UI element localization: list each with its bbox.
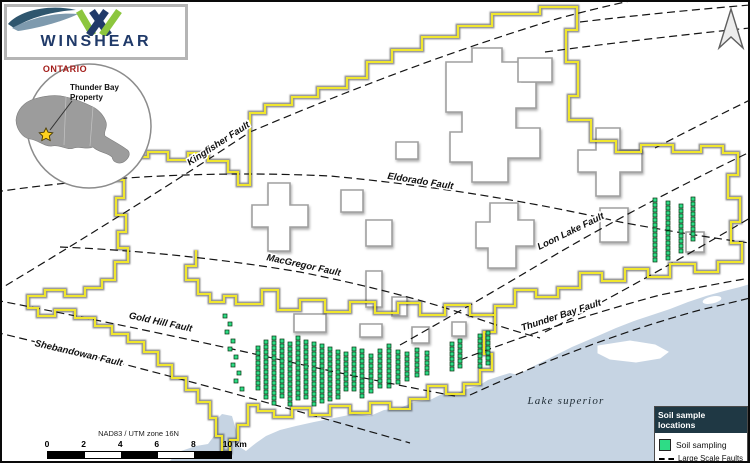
soil-sample-point bbox=[312, 347, 316, 351]
soil-sample-point bbox=[256, 386, 260, 390]
soil-sample-point bbox=[288, 372, 292, 376]
soil-sample-point bbox=[396, 380, 400, 384]
soil-sample-point bbox=[280, 369, 284, 373]
soil-sample-point bbox=[320, 399, 324, 403]
scalebar-tick: 2 bbox=[81, 439, 86, 449]
soil-sample-point bbox=[691, 202, 695, 206]
soil-sample-point bbox=[280, 374, 284, 378]
soil-sample-point bbox=[478, 344, 482, 348]
soil-sample-point bbox=[272, 351, 276, 355]
soil-sample-point bbox=[264, 345, 268, 349]
soil-sample-point bbox=[352, 372, 356, 376]
logo-text: WINSHEAR bbox=[7, 33, 185, 51]
soil-sample-point bbox=[344, 362, 348, 366]
soil-sample-point bbox=[666, 216, 670, 220]
soil-sample-point bbox=[296, 351, 300, 355]
inset-title: ONTARIO bbox=[43, 64, 87, 74]
soil-sample-point bbox=[228, 347, 232, 351]
soil-sample-point bbox=[458, 364, 462, 368]
soil-sample-point bbox=[360, 374, 364, 378]
soil-sample-point bbox=[264, 360, 268, 364]
soil-sample-point bbox=[272, 341, 276, 345]
soil-sample-point bbox=[288, 342, 292, 346]
soil-sample-point bbox=[653, 243, 657, 247]
soil-sample-point bbox=[486, 361, 490, 365]
legend: Soil sample locations Soil sampling Larg… bbox=[654, 406, 748, 463]
soil-sample-point bbox=[387, 359, 391, 363]
soil-sample-point bbox=[296, 391, 300, 395]
soil-sample-point bbox=[653, 253, 657, 257]
soil-sample-point bbox=[296, 341, 300, 345]
soil-sample-point bbox=[378, 379, 382, 383]
soil-sample-point bbox=[679, 234, 683, 238]
soil-sample-point bbox=[288, 352, 292, 356]
soil-sample-point bbox=[387, 364, 391, 368]
soil-sample-point bbox=[425, 366, 429, 370]
soil-sample-point bbox=[360, 369, 364, 373]
soil-sample-point bbox=[336, 390, 340, 394]
soil-sample-point bbox=[256, 361, 260, 365]
soil-sample-point bbox=[272, 381, 276, 385]
soil-sample-point bbox=[344, 357, 348, 361]
soil-sample-point bbox=[679, 204, 683, 208]
soil-sample-point bbox=[264, 370, 268, 374]
soil-sample-point bbox=[425, 356, 429, 360]
soil-sample-point bbox=[450, 357, 454, 361]
soil-sample-point bbox=[312, 382, 316, 386]
soil-sample-point bbox=[486, 346, 490, 350]
soil-sample-point bbox=[304, 380, 308, 384]
soil-sample-point bbox=[272, 386, 276, 390]
soil-sample-point bbox=[296, 356, 300, 360]
scalebar-tick: 4 bbox=[118, 439, 123, 449]
soil-sample-point bbox=[396, 360, 400, 364]
soil-sample-point bbox=[264, 380, 268, 384]
dashed-line-swatch-icon bbox=[659, 458, 674, 460]
soil-sample-point bbox=[478, 364, 482, 368]
soil-sample-point bbox=[352, 347, 356, 351]
soil-sample-point bbox=[360, 349, 364, 353]
soil-sample-point bbox=[296, 381, 300, 385]
claim-outline bbox=[360, 324, 382, 337]
soil-sample-point bbox=[320, 344, 324, 348]
soil-sample-point bbox=[231, 339, 235, 343]
soil-sample-point bbox=[369, 389, 373, 393]
scalebar: NAD83 / UTM zone 16N 10 km 02468 bbox=[47, 429, 230, 461]
soil-sample-point bbox=[352, 362, 356, 366]
soil-sample-point bbox=[280, 359, 284, 363]
soil-sample-point bbox=[360, 359, 364, 363]
soil-sample-point bbox=[666, 211, 670, 215]
soil-sample-point bbox=[679, 209, 683, 213]
soil-sample-point bbox=[288, 387, 292, 391]
soil-sample-point bbox=[666, 236, 670, 240]
soil-sample-point bbox=[679, 224, 683, 228]
soil-sample-point bbox=[256, 346, 260, 350]
soil-sample-point bbox=[336, 395, 340, 399]
soil-sample-point bbox=[666, 246, 670, 250]
soil-sample-point bbox=[296, 396, 300, 400]
soil-sample-point bbox=[272, 396, 276, 400]
soil-sample-point bbox=[264, 375, 268, 379]
soil-sample-point bbox=[264, 340, 268, 344]
soil-sample-point bbox=[304, 365, 308, 369]
soil-sample-point bbox=[352, 367, 356, 371]
soil-sample-point bbox=[304, 375, 308, 379]
soil-sample-point bbox=[280, 364, 284, 368]
legend-item-soil-sampling: Soil sampling bbox=[659, 439, 743, 451]
soil-sample-point bbox=[296, 386, 300, 390]
soil-sample-point bbox=[328, 362, 332, 366]
soil-sample-point bbox=[312, 402, 316, 406]
soil-sample-point bbox=[336, 365, 340, 369]
scalebar-tick: 0 bbox=[45, 439, 50, 449]
soil-sample-point bbox=[344, 352, 348, 356]
soil-sample-point bbox=[369, 384, 373, 388]
soil-sample-point bbox=[256, 366, 260, 370]
soil-sample-point bbox=[264, 395, 268, 399]
soil-sample-point bbox=[387, 369, 391, 373]
soil-sample-point bbox=[320, 384, 324, 388]
soil-sample-point bbox=[458, 349, 462, 353]
soil-sample-point bbox=[396, 375, 400, 379]
soil-sample-point bbox=[415, 348, 419, 352]
soil-sample-point bbox=[296, 366, 300, 370]
soil-sample-point bbox=[405, 377, 409, 381]
soil-sample-point bbox=[304, 360, 308, 364]
scalebar-bar bbox=[47, 451, 232, 459]
soil-sample-point bbox=[691, 197, 695, 201]
soil-sample-point bbox=[312, 387, 316, 391]
soil-sample-point bbox=[387, 384, 391, 388]
soil-sample-point bbox=[304, 390, 308, 394]
soil-sample-point bbox=[360, 354, 364, 358]
soil-sample-point bbox=[328, 397, 332, 401]
soil-sample-point bbox=[691, 237, 695, 241]
soil-sample-point bbox=[352, 387, 356, 391]
soil-sample-point bbox=[237, 371, 241, 375]
soil-sample-point bbox=[387, 374, 391, 378]
soil-sample-point bbox=[272, 366, 276, 370]
soil-sample-point bbox=[231, 363, 235, 367]
soil-sample-point bbox=[328, 382, 332, 386]
soil-sample-point bbox=[256, 371, 260, 375]
legend-title: Soil sample locations bbox=[655, 407, 747, 433]
winshear-swoosh-icon bbox=[2, 2, 82, 32]
soil-sample-point bbox=[272, 361, 276, 365]
soil-sample-point bbox=[666, 226, 670, 230]
soil-sample-point bbox=[272, 371, 276, 375]
soil-sample-point bbox=[344, 372, 348, 376]
soil-sample-point bbox=[369, 354, 373, 358]
soil-sample-point bbox=[336, 375, 340, 379]
soil-sample-point bbox=[296, 361, 300, 365]
legend-item-large-scale-faults: Large Scale Faults bbox=[659, 454, 743, 463]
soil-sample-point bbox=[352, 377, 356, 381]
soil-sample-point bbox=[256, 351, 260, 355]
soil-sample-point bbox=[360, 394, 364, 398]
soil-sample-point bbox=[328, 392, 332, 396]
claim-outline bbox=[518, 58, 552, 82]
soil-sample-point bbox=[288, 347, 292, 351]
soil-sample-point bbox=[264, 350, 268, 354]
soil-sample-point bbox=[225, 330, 229, 334]
soil-sample-point bbox=[415, 358, 419, 362]
soil-sample-point bbox=[280, 344, 284, 348]
soil-sample-point bbox=[288, 357, 292, 361]
soil-sample-point bbox=[666, 251, 670, 255]
soil-sample-point bbox=[328, 367, 332, 371]
soil-sample-point bbox=[256, 381, 260, 385]
soil-sample-point bbox=[296, 336, 300, 340]
soil-sample-point bbox=[369, 369, 373, 373]
claim-outline bbox=[452, 322, 466, 336]
soil-sample-point bbox=[679, 244, 683, 248]
soil-sample-point bbox=[425, 351, 429, 355]
soil-sample-point bbox=[425, 371, 429, 375]
soil-sample-point bbox=[415, 373, 419, 377]
soil-sample-point bbox=[691, 232, 695, 236]
soil-sample-point bbox=[320, 394, 324, 398]
soil-sample-point bbox=[360, 389, 364, 393]
soil-sample-point bbox=[405, 362, 409, 366]
soil-sample-point bbox=[320, 379, 324, 383]
soil-sample-point bbox=[312, 367, 316, 371]
soil-sample-point bbox=[272, 391, 276, 395]
soil-sample-point bbox=[228, 322, 232, 326]
soil-sample-point bbox=[458, 359, 462, 363]
soil-sample-point bbox=[264, 390, 268, 394]
soil-sample-point bbox=[478, 359, 482, 363]
soil-sample-point bbox=[387, 354, 391, 358]
soil-sample-point bbox=[352, 357, 356, 361]
soil-sample-point bbox=[336, 350, 340, 354]
soil-sample-point bbox=[691, 222, 695, 226]
soil-sample-point bbox=[486, 351, 490, 355]
soil-sample-point bbox=[296, 346, 300, 350]
soil-sample-point bbox=[304, 385, 308, 389]
soil-sample-point bbox=[312, 357, 316, 361]
soil-sample-point bbox=[691, 217, 695, 221]
soil-sample-point bbox=[396, 355, 400, 359]
soil-sample-point bbox=[344, 387, 348, 391]
soil-sample-point bbox=[405, 372, 409, 376]
soil-sample-point bbox=[653, 213, 657, 217]
soil-sample-point bbox=[679, 239, 683, 243]
soil-sample-point bbox=[328, 347, 332, 351]
soil-sample-point bbox=[458, 344, 462, 348]
soil-sample-point bbox=[666, 221, 670, 225]
soil-sample-point bbox=[296, 376, 300, 380]
soil-sample-point bbox=[336, 360, 340, 364]
soil-sample-point bbox=[679, 249, 683, 253]
soil-sample-point bbox=[653, 218, 657, 222]
soil-sample-point bbox=[234, 355, 238, 359]
inset-property-label: Property bbox=[70, 93, 103, 102]
map-canvas: Kingfisher FaultEldorado FaultLoon Lake … bbox=[0, 0, 750, 463]
soil-sample-point bbox=[288, 362, 292, 366]
soil-sample-point bbox=[320, 364, 324, 368]
soil-sample-point bbox=[288, 397, 292, 401]
soil-sample-point bbox=[320, 354, 324, 358]
soil-sample-point bbox=[450, 362, 454, 366]
claim-outline bbox=[600, 208, 628, 242]
soil-sample-point bbox=[280, 354, 284, 358]
soil-sample-point bbox=[264, 385, 268, 389]
scalebar-tick: 6 bbox=[154, 439, 159, 449]
claim-outline bbox=[396, 142, 418, 159]
soil-sample-point bbox=[320, 369, 324, 373]
soil-sample-point bbox=[272, 401, 276, 405]
soil-sample-point bbox=[320, 374, 324, 378]
soil-sample-point bbox=[450, 347, 454, 351]
soil-sample-point bbox=[666, 206, 670, 210]
soil-sample-point bbox=[653, 203, 657, 207]
soil-sample-point bbox=[312, 342, 316, 346]
soil-sample-point bbox=[280, 349, 284, 353]
soil-sample-point bbox=[405, 357, 409, 361]
soil-sample-point bbox=[405, 367, 409, 371]
soil-sample-point bbox=[478, 349, 482, 353]
soil-sample-point bbox=[272, 336, 276, 340]
soil-sample-point bbox=[691, 207, 695, 211]
claim-outline bbox=[366, 220, 392, 246]
soil-sample-point bbox=[264, 355, 268, 359]
soil-sample-point bbox=[352, 382, 356, 386]
soil-sample-point bbox=[256, 356, 260, 360]
soil-sample-point bbox=[369, 374, 373, 378]
soil-sample-point bbox=[296, 371, 300, 375]
soil-sample-point bbox=[486, 356, 490, 360]
soil-sample-point bbox=[288, 367, 292, 371]
soil-sample-point bbox=[450, 367, 454, 371]
soil-sample-point bbox=[336, 370, 340, 374]
scalebar-ticks: 10 km 02468 bbox=[47, 439, 230, 449]
inset-property-label: Thunder Bay bbox=[70, 83, 119, 92]
soil-sample-point bbox=[405, 352, 409, 356]
soil-sample-point bbox=[288, 377, 292, 381]
soil-sample-point bbox=[223, 314, 227, 318]
soil-sample-point bbox=[378, 369, 382, 373]
soil-sample-point bbox=[304, 345, 308, 349]
claim-outline bbox=[294, 314, 326, 332]
soil-sample-point bbox=[486, 341, 490, 345]
soil-sample-point bbox=[312, 397, 316, 401]
soil-sample-point bbox=[312, 392, 316, 396]
soil-sample-point bbox=[344, 382, 348, 386]
legend-body: Soil sampling Large Scale Faults bbox=[655, 433, 747, 463]
soil-sample-point bbox=[666, 201, 670, 205]
soil-sample-point bbox=[304, 355, 308, 359]
soil-sample-point bbox=[352, 352, 356, 356]
lake-label: Lake superior bbox=[526, 395, 604, 407]
soil-sample-point bbox=[653, 208, 657, 212]
soil-sample-point bbox=[312, 362, 316, 366]
soil-sample-point bbox=[344, 377, 348, 381]
claim-outline bbox=[341, 190, 363, 212]
soil-sample-point bbox=[304, 370, 308, 374]
soil-sample-point bbox=[234, 379, 238, 383]
soil-sample-point bbox=[256, 376, 260, 380]
soil-sample-point bbox=[328, 352, 332, 356]
soil-sample-point bbox=[478, 339, 482, 343]
soil-sample-point bbox=[328, 377, 332, 381]
soil-sample-point bbox=[378, 354, 382, 358]
scalebar-end-label: 10 km bbox=[223, 439, 247, 449]
soil-sample-point bbox=[344, 367, 348, 371]
soil-sample-point bbox=[666, 241, 670, 245]
soil-sample-point bbox=[280, 394, 284, 398]
soil-sample-point bbox=[415, 368, 419, 372]
soil-sample-point bbox=[320, 389, 324, 393]
soil-sample-point bbox=[336, 355, 340, 359]
soil-sample-point bbox=[328, 357, 332, 361]
soil-sampling-swatch-icon bbox=[659, 439, 671, 451]
soil-sample-point bbox=[369, 359, 373, 363]
soil-sample-point bbox=[679, 219, 683, 223]
soil-sample-point bbox=[653, 258, 657, 262]
soil-sample-point bbox=[280, 379, 284, 383]
soil-sample-point bbox=[666, 256, 670, 260]
soil-sample-point bbox=[378, 349, 382, 353]
soil-sample-point bbox=[369, 379, 373, 383]
soil-sample-point bbox=[369, 364, 373, 368]
scalebar-tick: 8 bbox=[191, 439, 196, 449]
soil-sample-point bbox=[486, 336, 490, 340]
soil-sample-point bbox=[425, 361, 429, 365]
soil-sample-point bbox=[304, 350, 308, 354]
soil-sample-point bbox=[378, 359, 382, 363]
map-svg: Kingfisher FaultEldorado FaultLoon Lake … bbox=[2, 2, 748, 461]
soil-sample-point bbox=[653, 198, 657, 202]
soil-sample-point bbox=[478, 334, 482, 338]
soil-sample-point bbox=[272, 356, 276, 360]
soil-sample-point bbox=[312, 377, 316, 381]
soil-sample-point bbox=[288, 392, 292, 396]
soil-sample-point bbox=[280, 384, 284, 388]
soil-sample-point bbox=[328, 372, 332, 376]
soil-sample-point bbox=[653, 248, 657, 252]
soil-sample-point bbox=[396, 350, 400, 354]
soil-sample-point bbox=[387, 349, 391, 353]
soil-sample-point bbox=[387, 344, 391, 348]
soil-sample-point bbox=[378, 384, 382, 388]
soil-sample-point bbox=[653, 223, 657, 227]
soil-sample-point bbox=[328, 387, 332, 391]
soil-sample-point bbox=[396, 370, 400, 374]
soil-sample-point bbox=[396, 365, 400, 369]
soil-sample-point bbox=[304, 395, 308, 399]
soil-sample-point bbox=[478, 354, 482, 358]
soil-sample-point bbox=[312, 352, 316, 356]
soil-sample-point bbox=[272, 346, 276, 350]
soil-sample-point bbox=[272, 376, 276, 380]
soil-sample-point bbox=[312, 372, 316, 376]
soil-sample-point bbox=[280, 389, 284, 393]
soil-sample-point bbox=[450, 352, 454, 356]
soil-sample-point bbox=[691, 212, 695, 216]
soil-sample-point bbox=[280, 339, 284, 343]
soil-sample-point bbox=[691, 227, 695, 231]
soil-sample-point bbox=[679, 214, 683, 218]
soil-sample-point bbox=[415, 363, 419, 367]
soil-sample-point bbox=[378, 364, 382, 368]
soil-sample-point bbox=[387, 379, 391, 383]
soil-sample-point bbox=[304, 340, 308, 344]
soil-sample-point bbox=[450, 342, 454, 346]
soil-sample-point bbox=[360, 379, 364, 383]
soil-sample-point bbox=[336, 380, 340, 384]
